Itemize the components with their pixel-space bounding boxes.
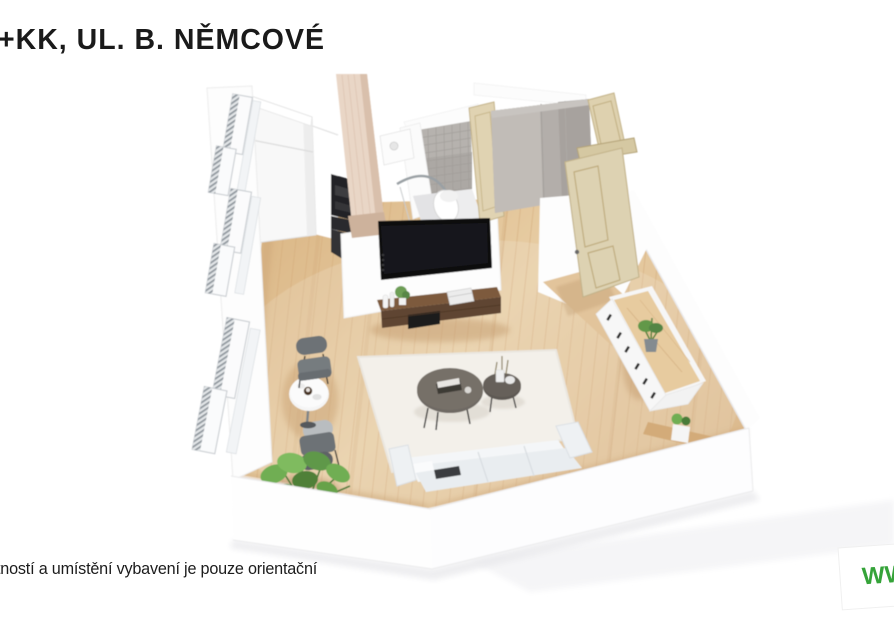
svg-text:WW: WW	[861, 560, 894, 590]
svg-text:+KK, UL. B. NĚMCOVÉ: +KK, UL. B. NĚMCOVÉ	[0, 24, 325, 56]
svg-text:tností a umístění vybavení je: tností a umístění vybavení je pouze orie…	[0, 560, 318, 578]
